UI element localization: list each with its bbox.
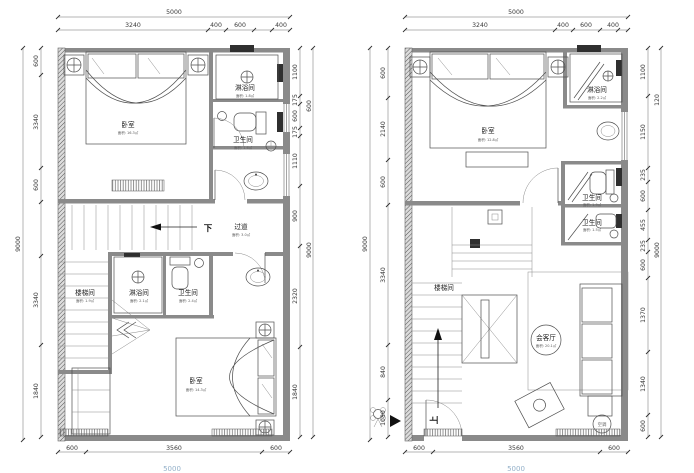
down-arrow xyxy=(150,224,197,231)
dim-chain-bottom: 600 3560 600 xyxy=(403,445,630,454)
radiator xyxy=(424,429,462,436)
room-area: 面积: 20.1㎡ xyxy=(536,343,557,348)
dim-label: 1370 xyxy=(640,307,647,323)
sofa-icon xyxy=(72,368,110,434)
dim-label: 600 xyxy=(33,55,40,67)
dim-label: 9000 xyxy=(15,236,22,252)
room-area: 面积: 2.4㎡ xyxy=(179,298,198,303)
walls xyxy=(405,45,628,441)
dim-label: 2140 xyxy=(380,121,387,137)
up-label: 上 xyxy=(429,415,440,424)
dim-label: 175 xyxy=(292,126,299,138)
dim-label: 1840 xyxy=(292,384,299,400)
room-area: 面积: 12.8㎡ xyxy=(478,137,499,142)
dim-label: 400 xyxy=(607,22,619,29)
dim-label: 1100 xyxy=(640,64,647,80)
room-label: 卧室 xyxy=(481,126,495,135)
room-label: 楼梯间 xyxy=(434,283,454,292)
dim-label: 600 xyxy=(270,445,282,452)
dim-label: 9000 xyxy=(362,236,369,252)
dim-label: 9000 xyxy=(654,242,661,258)
room-label: 卫生间 xyxy=(582,218,602,227)
room-area: 面积: 1.5㎡ xyxy=(583,227,602,232)
walls xyxy=(58,45,290,441)
entry-arrow xyxy=(390,415,401,427)
dim-label: 600 xyxy=(608,445,620,452)
shower-icon xyxy=(114,257,162,313)
basin-icon xyxy=(244,172,270,286)
room-label: 卧室 xyxy=(121,120,135,129)
dim-label: 3340 xyxy=(33,292,40,308)
dim-label: 3340 xyxy=(33,114,40,130)
plan-left: 卧室 面积: 16.3㎡ 淋浴间 面积: 1.8㎡ 卫生间 面积: 1.6㎡ 下… xyxy=(15,9,315,473)
room-label: 卫生间 xyxy=(178,288,198,297)
door-arc xyxy=(426,168,558,436)
sofa-icon xyxy=(580,284,622,396)
shower-icon xyxy=(216,55,278,99)
dim-label: 600 xyxy=(66,445,78,452)
room-area: 面积: 14.3㎡ xyxy=(186,387,207,392)
room-label: 卫生间 xyxy=(233,135,253,144)
dim-label: 600 xyxy=(380,176,387,188)
dim-chain-left: 600 2140 600 3340 840 1080 xyxy=(380,46,390,439)
room-area: 面积: 16.3㎡ xyxy=(118,130,139,135)
dim-label: 1110 xyxy=(292,153,299,169)
dim-label: 5000 xyxy=(508,9,524,16)
bed-icon xyxy=(430,52,546,167)
room-label: 卧室 xyxy=(189,376,203,385)
dim-label: 3240 xyxy=(125,22,141,29)
stairs-icon xyxy=(411,207,532,403)
dim-chain-bottom: 600 3560 600 xyxy=(56,445,292,454)
ac-label: 空调 xyxy=(598,421,607,428)
dim-left-outer: 9000 xyxy=(15,46,25,442)
room-label: 卫生间 xyxy=(582,193,602,202)
radiator xyxy=(112,180,164,191)
dim-chain-right: 1100 175 600 175 1110 900 2320 1840 xyxy=(292,46,302,439)
room-label: 楼梯间 xyxy=(75,288,95,297)
rug xyxy=(528,272,628,390)
floorplan-image: 卧室 面积: 16.3㎡ 淋浴间 面积: 1.8㎡ 卫生间 面积: 1.6㎡ 下… xyxy=(0,0,694,473)
room-area: 面积: 1.6㎡ xyxy=(234,145,253,150)
room-area: 面积: 1.8㎡ xyxy=(236,93,255,98)
dim-chain-left: 600 3340 600 3340 1840 xyxy=(33,46,43,439)
plan-right: 卧室 面积: 12.8㎡ 淋浴间 面积: 2.2㎡ 卫生间 面积: 1.9㎡ 卫… xyxy=(362,9,663,473)
room-area: 面积: 2.2㎡ xyxy=(588,95,607,100)
dim-label: 400 xyxy=(275,22,287,29)
dim-label: 120 xyxy=(654,94,661,106)
window xyxy=(621,112,628,160)
dim-chain-top-overall: 5000 xyxy=(403,9,630,19)
room-label: 过道 xyxy=(234,222,248,231)
dim-chain-top: 3240 400 600 400 xyxy=(56,22,292,32)
dim-label: 1080 xyxy=(380,410,387,426)
dim-label: 600 xyxy=(33,179,40,191)
room-label: 淋浴间 xyxy=(235,83,255,92)
dim-label: 1150 xyxy=(640,124,647,140)
dim-label: 3560 xyxy=(166,445,182,452)
dim-label: 1340 xyxy=(640,376,647,392)
dim-label: 1840 xyxy=(33,383,40,399)
radiator xyxy=(60,429,108,436)
dim-right-outer: 600 9000 xyxy=(306,46,315,439)
dim-label: 600 xyxy=(292,110,299,122)
dim-label: 175 xyxy=(292,94,299,106)
toilet-icon xyxy=(170,257,204,289)
room-area: 面积: 3.0㎡ xyxy=(232,232,251,237)
floorplan-canvas: 卧室 面积: 16.3㎡ 淋浴间 面积: 1.8㎡ 卫生间 面积: 1.6㎡ 下… xyxy=(0,0,694,473)
side-table xyxy=(588,396,612,416)
room-label: 淋浴间 xyxy=(129,288,149,297)
basin-icon xyxy=(601,126,615,137)
dim-label-overall-bottom: 5000 xyxy=(507,465,525,473)
basin-icon xyxy=(597,122,619,140)
dim-label: 600 xyxy=(640,190,647,202)
up-arrow xyxy=(434,328,442,408)
dim-label: 900 xyxy=(292,210,299,222)
dim-chain-right: 1100 1150 235 600 455 235 600 1370 1340 … xyxy=(640,46,650,439)
dim-label: 600 xyxy=(413,445,425,452)
radiator xyxy=(212,429,272,436)
room-label: 会客厅 xyxy=(536,333,556,342)
dim-label: 455 xyxy=(640,219,647,231)
dim-label: 600 xyxy=(580,22,592,29)
shower-icon xyxy=(570,54,622,102)
dim-label: 400 xyxy=(557,22,569,29)
radiator xyxy=(556,429,620,436)
dim-label: 400 xyxy=(210,22,222,29)
room-label: 淋浴间 xyxy=(587,85,607,94)
dim-right-outer: 120 9000 xyxy=(654,46,663,439)
dim-chain-top-overall: 5000 xyxy=(56,9,292,19)
dim-label: 1100 xyxy=(292,64,299,80)
dim-label: 600 xyxy=(306,100,313,112)
dim-label: 840 xyxy=(380,366,387,378)
room-area: 面积: 1.9㎡ xyxy=(583,202,602,207)
dim-label: 600 xyxy=(640,420,647,432)
dim-chain-top: 3240 400 600 400 xyxy=(403,22,630,32)
armchair-icon xyxy=(515,382,564,427)
dim-label: 600 xyxy=(380,67,387,79)
dim-left-outer: 9000 xyxy=(362,46,372,442)
toilet-icon xyxy=(568,214,618,240)
dim-label: 5000 xyxy=(166,9,182,16)
dim-label: 235 xyxy=(640,169,647,181)
dim-label: 3340 xyxy=(380,267,387,283)
dim-label-overall-bottom: 5000 xyxy=(163,465,181,473)
room-area: 面积: 2.1㎡ xyxy=(130,298,149,303)
dim-label: 3240 xyxy=(472,22,488,29)
down-label: 下 xyxy=(204,224,213,234)
dim-label: 600 xyxy=(234,22,246,29)
dim-label: 600 xyxy=(640,259,647,271)
dim-label: 9000 xyxy=(306,242,313,258)
dim-label: 2320 xyxy=(292,288,299,304)
fan-icon xyxy=(256,322,274,435)
dim-label: 3560 xyxy=(508,445,524,452)
room-area: 面积: 1.9㎡ xyxy=(76,298,95,303)
